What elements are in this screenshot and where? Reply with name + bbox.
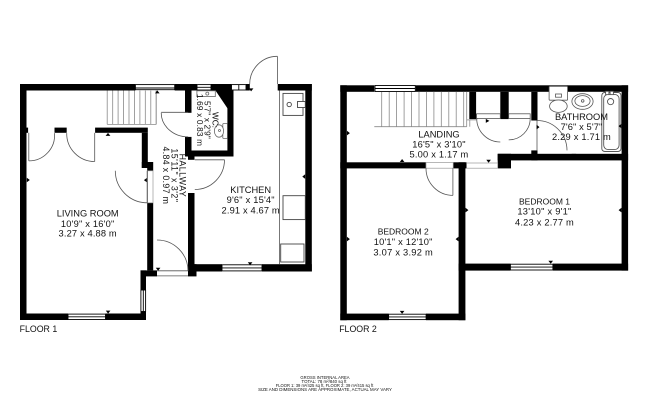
svg-text:BEDROOM 1: BEDROOM 1 bbox=[519, 197, 570, 207]
svg-text:13'10" x 9'1": 13'10" x 9'1" bbox=[517, 207, 571, 217]
svg-text:4.84 x 0.97 m: 4.84 x 0.97 m bbox=[161, 146, 171, 204]
svg-text:10'9" x 16'0": 10'9" x 16'0" bbox=[61, 219, 115, 229]
svg-text:LANDING: LANDING bbox=[418, 130, 459, 140]
svg-text:3.27 x 4.88 m: 3.27 x 4.88 m bbox=[59, 229, 117, 239]
svg-text:BATHROOM: BATHROOM bbox=[555, 112, 608, 122]
svg-text:FLOOR 1: FLOOR 1 bbox=[20, 324, 58, 334]
svg-text:1.69 x 0.83 m: 1.69 x 0.83 m bbox=[195, 94, 204, 146]
svg-text:7'6" x 5'7": 7'6" x 5'7" bbox=[561, 122, 603, 132]
svg-text:LIVING ROOM: LIVING ROOM bbox=[57, 209, 119, 219]
svg-text:2.29 x 1.71 m: 2.29 x 1.71 m bbox=[552, 132, 611, 142]
svg-text:4.23 x 2.77 m: 4.23 x 2.77 m bbox=[515, 218, 574, 228]
svg-text:FLOOR 2: FLOOR 2 bbox=[339, 324, 377, 334]
svg-text:10'1" x 12'10": 10'1" x 12'10" bbox=[374, 237, 433, 247]
svg-text:KITCHEN: KITCHEN bbox=[230, 185, 271, 195]
svg-text:BEDROOM 2: BEDROOM 2 bbox=[378, 227, 429, 237]
svg-text:2.91 x 4.67 m: 2.91 x 4.67 m bbox=[222, 206, 280, 216]
svg-text:SIZE AND DIMENSIONS ARE APPROX: SIZE AND DIMENSIONS ARE APPROXIMATE, ACT… bbox=[258, 387, 392, 392]
svg-text:16'5" x 3'10": 16'5" x 3'10" bbox=[412, 140, 466, 150]
svg-text:5.00 x 1.17 m: 5.00 x 1.17 m bbox=[410, 150, 469, 160]
svg-text:9'6" x 15'4": 9'6" x 15'4" bbox=[227, 195, 275, 205]
svg-text:3.07 x 3.92 m: 3.07 x 3.92 m bbox=[373, 248, 433, 258]
